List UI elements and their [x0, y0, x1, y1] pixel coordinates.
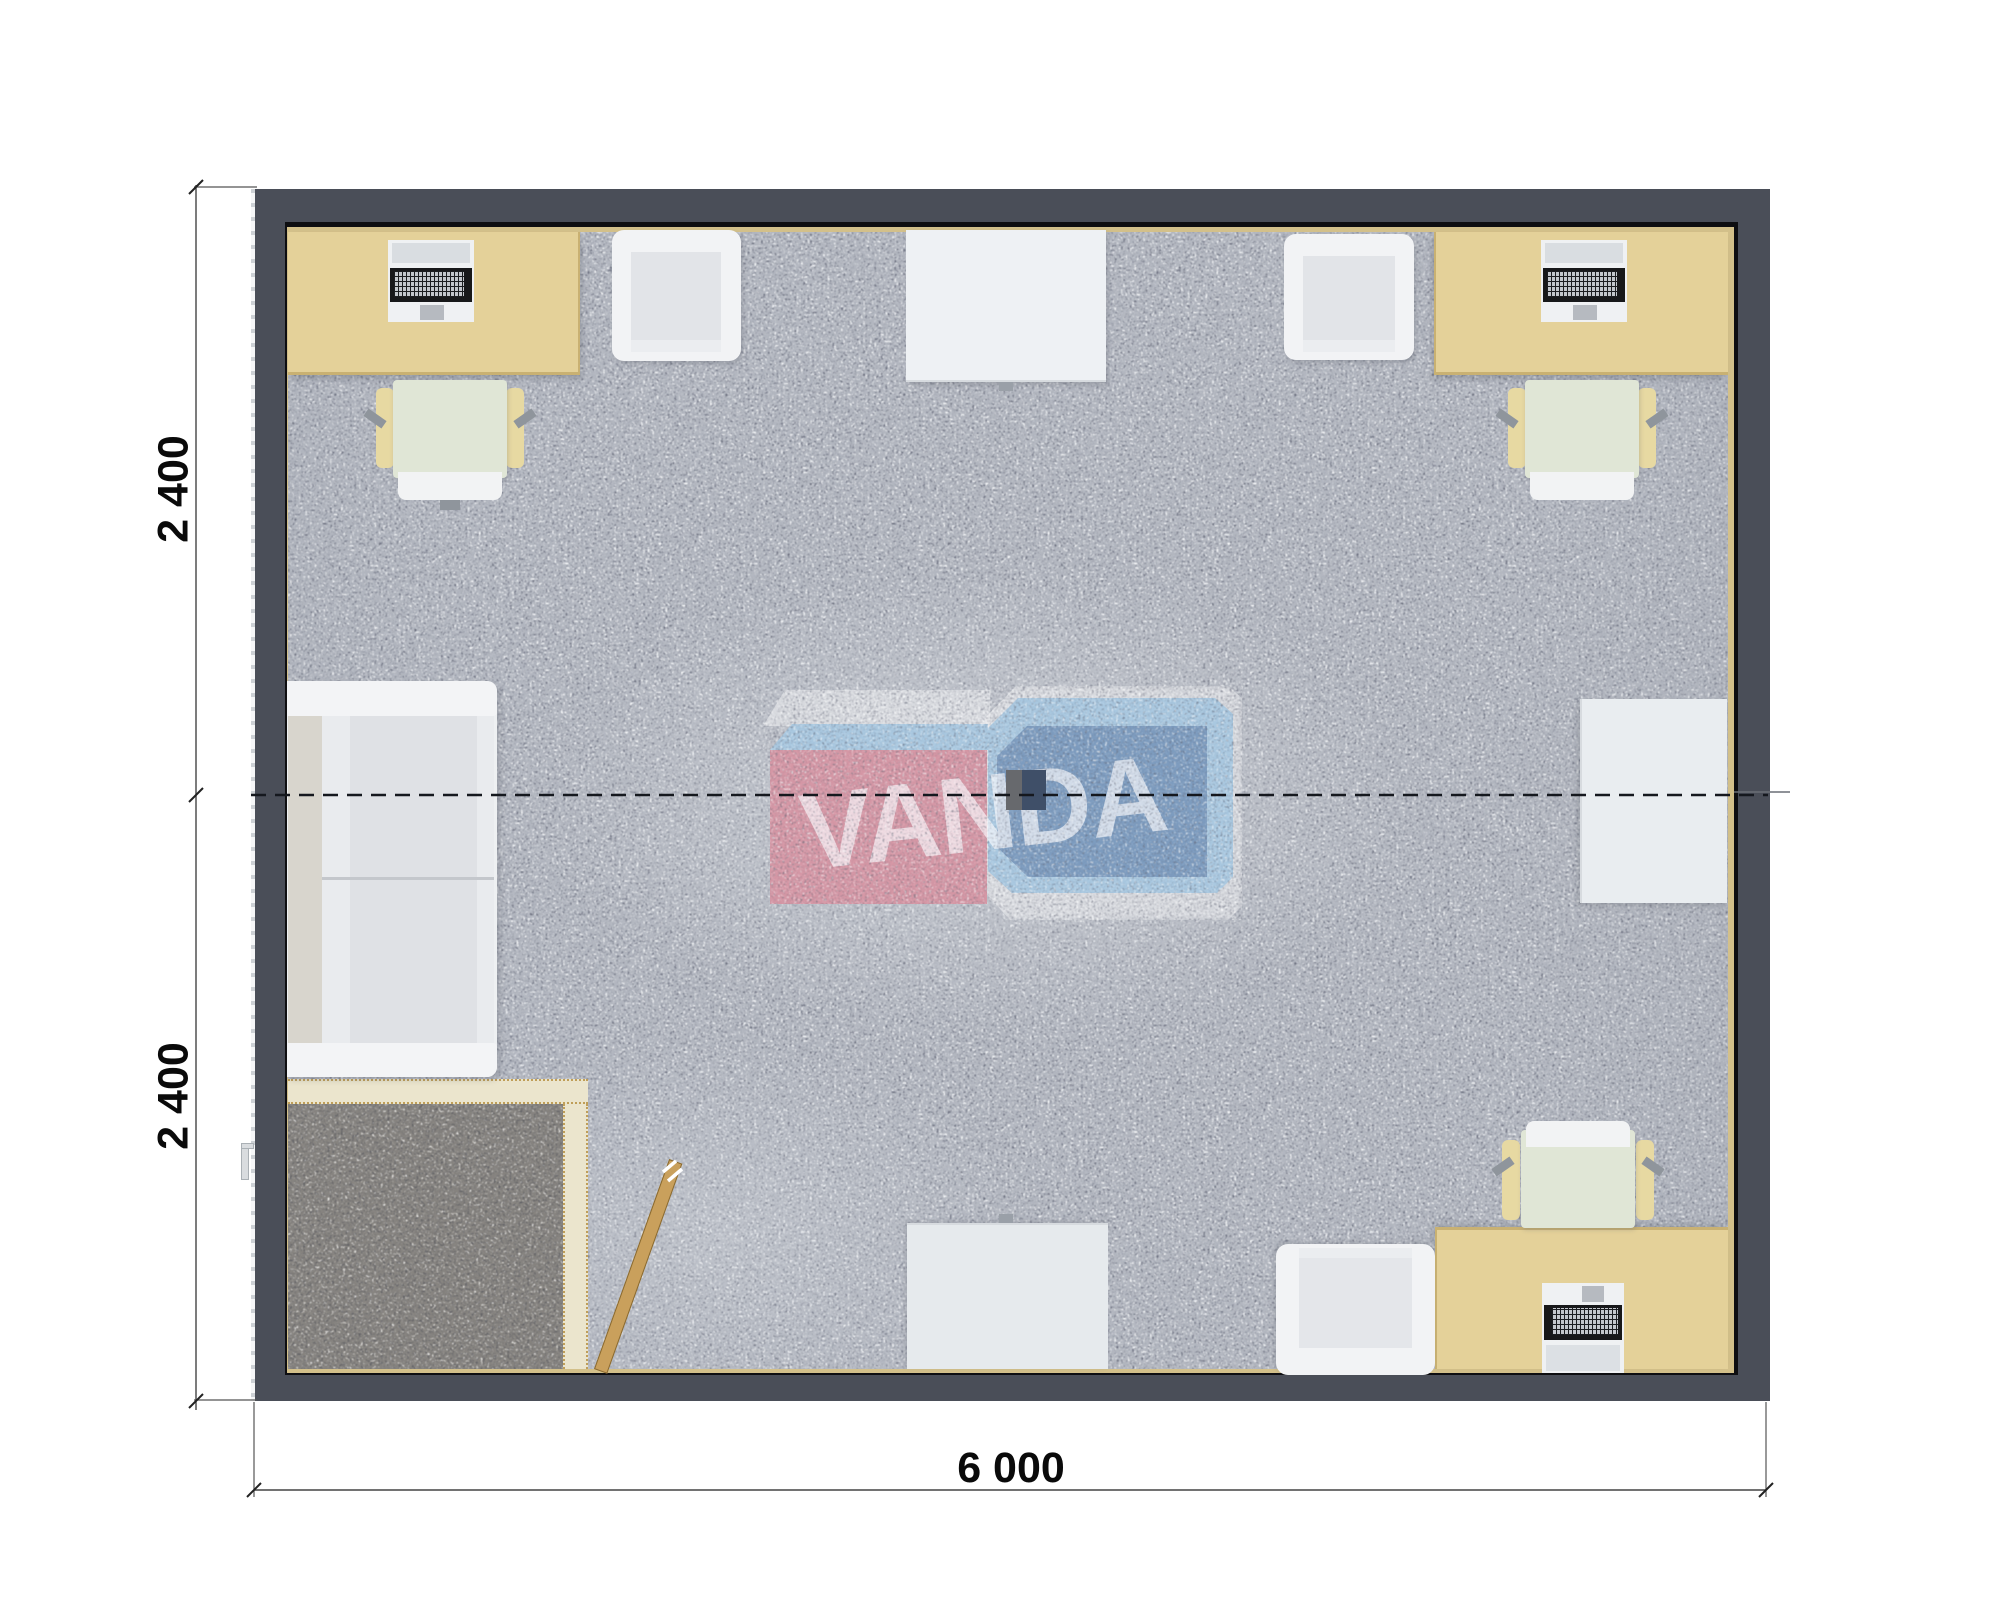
svg-text:2 400: 2 400	[149, 435, 197, 543]
svg-text:6 000: 6 000	[957, 1444, 1065, 1492]
svg-text:2 400: 2 400	[149, 1042, 197, 1150]
